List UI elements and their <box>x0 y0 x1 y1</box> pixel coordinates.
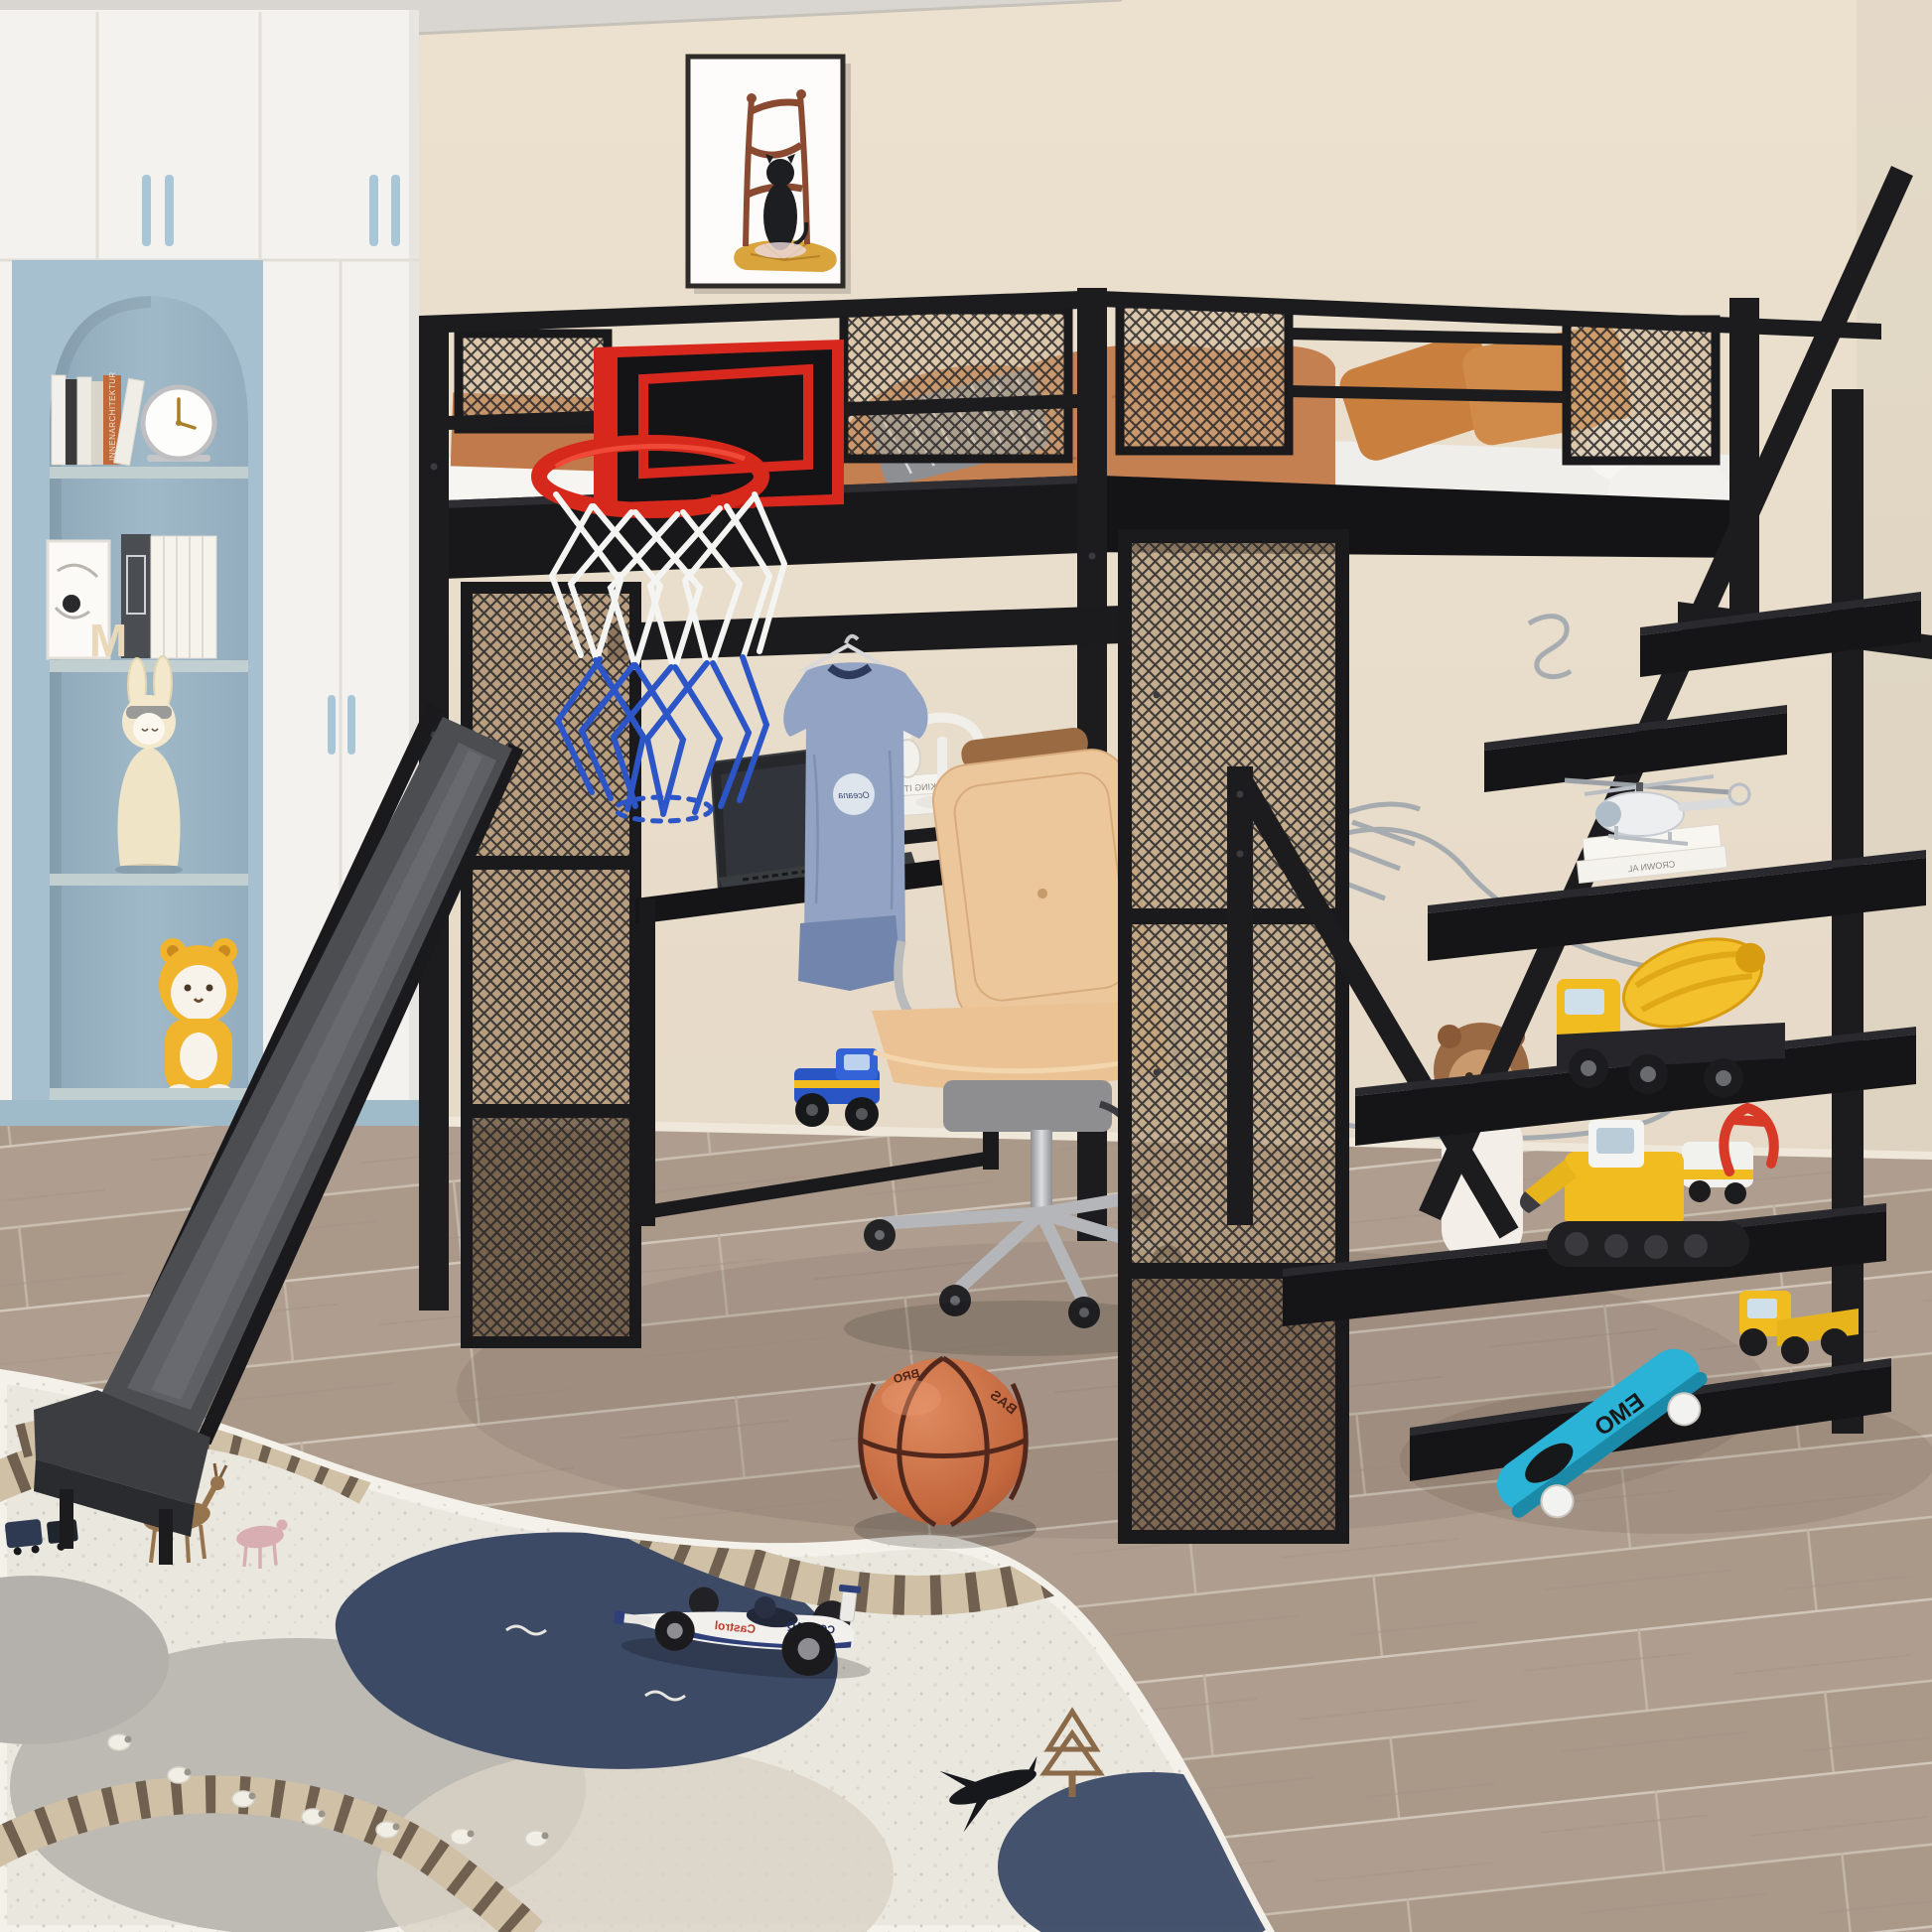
niche-shelf-frame-books: M <box>48 534 216 666</box>
mesh-column-left <box>467 588 635 1342</box>
letter-m-decor: M <box>89 615 127 666</box>
picture-frame <box>688 57 851 294</box>
niche-shelf-books: INNENARCHITEKTUR <box>52 371 144 466</box>
niche-shelf-board <box>50 874 248 886</box>
niche-shelf-board <box>50 660 248 672</box>
shirt-logo-text: Oceana <box>838 790 870 800</box>
book-spine-text: INNENARCHITEKTUR <box>108 371 117 461</box>
hanging-shorts <box>798 915 901 991</box>
niche-shelf-board <box>50 467 248 479</box>
chair-cylinder <box>1031 1130 1052 1209</box>
bedroom-photo: INNENARCHITEKTUR M <box>0 0 1932 1932</box>
toy-truck-white <box>1682 1142 1753 1187</box>
bed-post-right <box>1729 298 1759 625</box>
scene-canvas: INNENARCHITEKTUR M <box>0 0 1932 1932</box>
desk-clock <box>143 387 214 462</box>
